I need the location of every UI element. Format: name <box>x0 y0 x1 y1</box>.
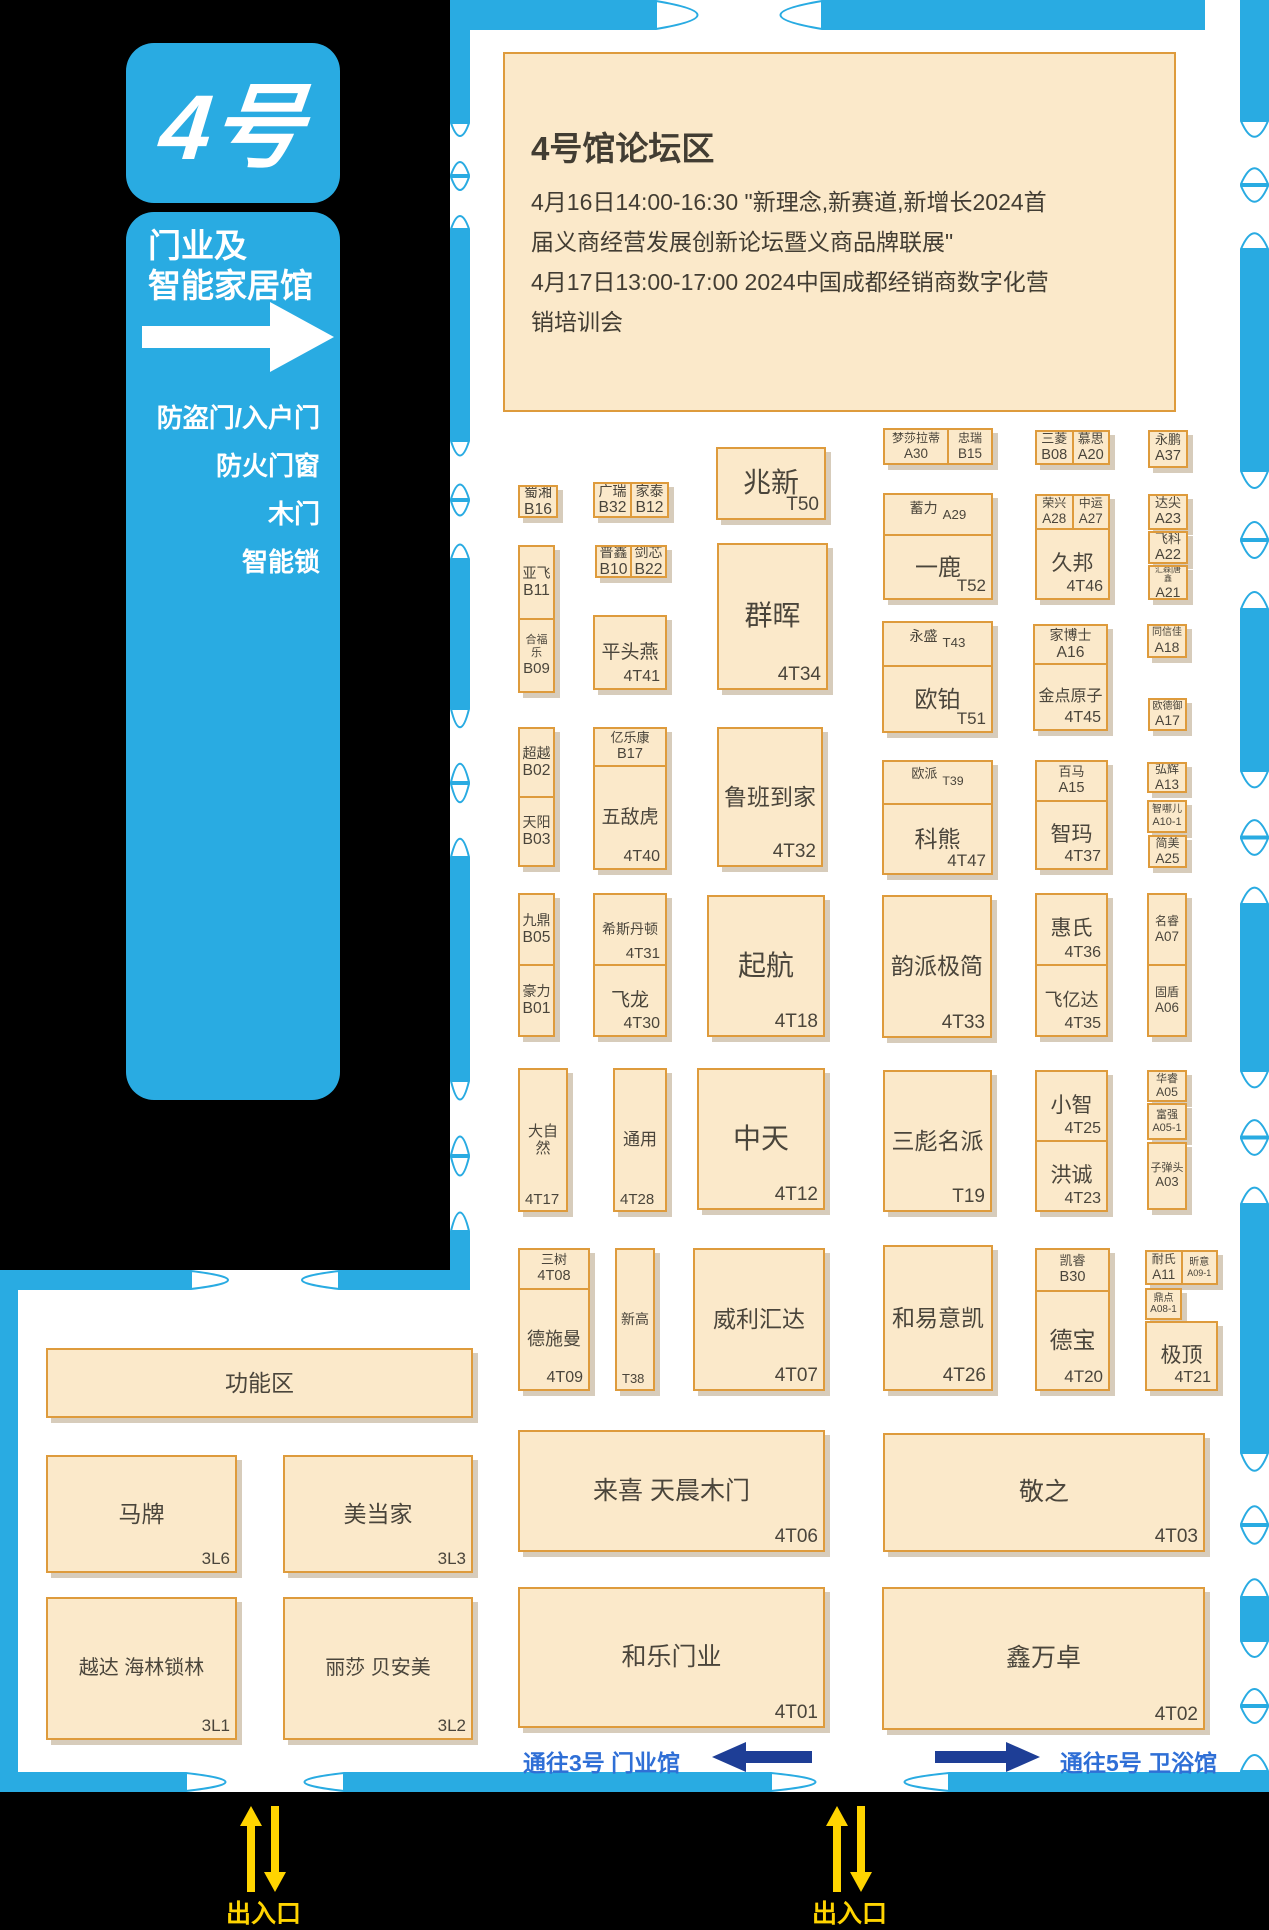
booth-code: B15 <box>958 446 982 461</box>
booth-cell: 小智4T25 <box>1037 1072 1106 1140</box>
booth-name: 弘辉 <box>1155 764 1179 777</box>
booth-cell: 华睿A05 <box>1149 1072 1185 1100</box>
booth: 同信佳A18 <box>1147 624 1187 658</box>
booth: 来喜 天晨木门4T06 <box>518 1430 825 1552</box>
booth-cell: 昕意A09-1 <box>1181 1252 1217 1283</box>
booth-code: B16 <box>524 501 552 516</box>
booth-name: 汇森|唐鑫 <box>1151 567 1185 584</box>
booth: 鼎点A08-1 <box>1145 1288 1182 1320</box>
booth-cell: 鑫万卓4T02 <box>884 1589 1203 1728</box>
booth: 极顶4T21 <box>1145 1321 1218 1391</box>
door-left <box>450 440 470 560</box>
floor-plan: 4号馆论坛区 4月16日14:00-16:30 "新理念,新赛道,新增长2024… <box>0 0 1269 1912</box>
booth: 飞科A22 <box>1148 531 1188 564</box>
booth-cell: 极顶4T21 <box>1147 1323 1216 1389</box>
door-annex-top <box>190 1270 340 1290</box>
booth-cell: 飞亿达4T35 <box>1037 964 1106 1035</box>
booth-cell: 欧铂T51 <box>884 665 991 731</box>
booth: 华睿A05 <box>1147 1070 1187 1102</box>
booth-name: 美当家 <box>344 1501 413 1527</box>
door-swing-icon <box>1240 1640 1269 1772</box>
booth: 小智4T25洪诚4T23 <box>1035 1070 1108 1212</box>
booth-code: B32 <box>599 499 627 516</box>
wall-segment <box>450 0 655 30</box>
booth-name: 忠瑞 <box>958 432 982 446</box>
booth-cell: 平头燕4T41 <box>595 617 665 688</box>
booth-name: 昕意 <box>1189 1257 1209 1269</box>
booth-code: 4T35 <box>1065 1015 1101 1033</box>
booth: 三树4T08德施曼4T09 <box>518 1248 590 1391</box>
booth: 永盛T43欧铂T51 <box>882 621 993 733</box>
booth: 亚飞B11合福乐B09 <box>518 545 555 693</box>
booth-name: 平头燕 <box>601 642 658 664</box>
booth-name: 科熊 <box>915 826 961 852</box>
booth-code: B30 <box>1060 1269 1086 1286</box>
booth-name: 希斯丹顿 <box>602 921 658 937</box>
booth-code: A25 <box>1156 851 1180 866</box>
forum-line: 届义商经营发展创新论坛暨义商品牌联展" <box>531 222 1049 262</box>
booth-name: 飞亿达 <box>1045 990 1099 1011</box>
booth-cell: 简美A25 <box>1150 837 1185 866</box>
booth-code: B11 <box>523 582 550 600</box>
booth-cell: 马牌3L6 <box>48 1457 235 1571</box>
booth-name: 同信佳 <box>1152 627 1182 639</box>
door-left <box>450 122 470 230</box>
booth-code: 4T03 <box>1155 1526 1198 1548</box>
door-swing-icon <box>450 440 470 560</box>
booth: 韵派极简4T33 <box>882 895 992 1038</box>
booth-name: 华睿 <box>1156 1073 1178 1086</box>
arrow-right-icon <box>935 1742 1040 1772</box>
booth: 永鹏A37 <box>1148 430 1188 468</box>
booth-cell: 群晖4T34 <box>719 545 826 688</box>
booth-code: A30 <box>904 446 928 461</box>
booth-cell: 来喜 天晨木门4T06 <box>520 1432 823 1550</box>
forum-title: 4号馆论坛区 <box>531 122 714 170</box>
booth-code: A08-1 <box>1150 1304 1177 1316</box>
booth-cell: 荣兴A28 <box>1037 496 1072 528</box>
booth-code: B05 <box>523 929 551 947</box>
booth-cell: 豪力B01 <box>520 964 553 1035</box>
booth-cell: 家泰B12 <box>630 484 667 516</box>
booth-name: 马牌 <box>119 1501 165 1527</box>
booth-cell: 家博士A16 <box>1035 626 1106 663</box>
booth: 兆新T50 <box>716 447 826 520</box>
booth-name: 群晖 <box>744 600 800 632</box>
booth-name: 五敌虎 <box>601 807 658 829</box>
booth-code: 4T01 <box>775 1702 818 1724</box>
booth-code: A06 <box>1155 1000 1179 1015</box>
booth-code: 4T34 <box>778 664 821 686</box>
booth-code: A10-1 <box>1152 816 1181 829</box>
door-swing-icon <box>450 708 470 858</box>
booth-name: 大自然 <box>521 1123 565 1158</box>
booth-name: 智哪儿 <box>1152 804 1182 816</box>
door-swing-icon <box>450 122 470 230</box>
booth-cell: 韵派极简4T33 <box>884 897 990 1036</box>
booth-cell: 惠氏4T36 <box>1037 895 1106 964</box>
booth-name: 丽莎 贝安美 <box>325 1657 431 1680</box>
booth: 简美A25 <box>1148 835 1187 868</box>
booth-code: B01 <box>523 1000 551 1018</box>
booth-cell: 新高T38 <box>617 1250 653 1389</box>
booth-name: 洪诚 <box>1051 1164 1093 1188</box>
booth-code: A13 <box>1155 777 1179 791</box>
booth-code: B22 <box>635 561 663 576</box>
wall-segment <box>1240 905 1269 1070</box>
forum-schedule: 4月16日14:00-16:30 "新理念,新赛道,新增长2024首 届义商经营… <box>531 182 1049 342</box>
booth: 名睿A07固盾A06 <box>1147 893 1187 1037</box>
booth: 亿乐康B17五敌虎4T40 <box>593 727 667 870</box>
booth: 希斯丹顿4T31飞龙4T30 <box>593 893 667 1037</box>
booth-cell: 飞龙4T30 <box>595 964 665 1035</box>
booth-cell: 金点原子4T45 <box>1035 663 1106 729</box>
category-list: 防盗门/入户门 防火门窗 木门 智能锁 <box>157 394 320 586</box>
booth-name: 天阳 <box>523 814 551 830</box>
booth-cell: 德宝4T20 <box>1037 1290 1108 1389</box>
wall-segment <box>1240 250 1269 470</box>
booth: 威利汇达4T07 <box>693 1248 825 1391</box>
door-swing-icon <box>1240 1452 1269 1598</box>
booth-cell: 忠瑞B15 <box>947 430 991 463</box>
booth-name: 凯睿 <box>1059 1254 1085 1269</box>
booth: 达尖A23 <box>1148 494 1188 530</box>
booth-code: A23 <box>1155 511 1181 528</box>
booth-cell: 科熊4T47 <box>884 803 991 873</box>
booth-cell: 越达 海林锁林3L1 <box>48 1599 235 1738</box>
booth-code: 4T33 <box>942 1012 985 1034</box>
booth-cell: 鲁班到家4T32 <box>719 729 821 865</box>
booth-code: T38 <box>622 1372 644 1387</box>
wall-segment <box>340 1270 470 1290</box>
booth-code: 4T32 <box>773 841 816 863</box>
booth: 中天4T12 <box>697 1068 825 1210</box>
booth-cell: 和乐门业4T01 <box>520 1589 823 1726</box>
booth-code: 3L6 <box>202 1549 230 1569</box>
booth: 三菱B08慕思A20 <box>1035 430 1110 465</box>
booth: 耐氏A11昕意A09-1 <box>1145 1250 1218 1285</box>
booth-cell: 丽莎 贝安美3L2 <box>285 1599 471 1738</box>
door-swing-icon <box>655 0 823 30</box>
wall-segment <box>450 30 470 122</box>
booth: 大自然4T17 <box>518 1068 568 1212</box>
wall-segment <box>450 560 470 708</box>
booth-name: 起航 <box>738 950 794 982</box>
booth-name: 金点原子 <box>1038 688 1102 706</box>
booth-cell: 智玛4T37 <box>1037 800 1106 868</box>
booth-name: 极顶 <box>1161 1344 1203 1368</box>
booth-code: 4T46 <box>1067 578 1103 596</box>
hall-info-card: 门业及 智能家居馆 防盗门/入户门 防火门窗 木门 智能锁 <box>126 212 340 1100</box>
booth-cell: 中运A27 <box>1072 496 1109 528</box>
wall-segment <box>1240 1205 1269 1452</box>
booth-code: A09-1 <box>1187 1268 1211 1278</box>
booth-cell: 飞科A22 <box>1150 533 1186 562</box>
booth-cell: 鼎点A08-1 <box>1147 1290 1180 1318</box>
booth: 广瑞B32家泰B12 <box>593 482 669 518</box>
booth-cell: 和易意凯4T26 <box>885 1247 991 1389</box>
booth-code: 4T41 <box>624 668 660 686</box>
booth-cell: 亚飞B11 <box>520 547 553 618</box>
booth-cell: 三菱B08 <box>1037 432 1072 463</box>
booth-code: 4T31 <box>626 945 660 962</box>
booth-cell: 超越B02 <box>520 729 553 796</box>
route-to-hall3-label: 通往3号 门业馆 <box>523 1744 680 1778</box>
booth-code: B17 <box>617 746 643 763</box>
booth-code: A17 <box>1155 712 1180 728</box>
booth-code: A07 <box>1155 929 1179 944</box>
booth-cell: 固盾A06 <box>1149 964 1185 1035</box>
hall-number-badge: 4号 <box>126 43 340 203</box>
booth-group: 荣兴A28中运A27 <box>1037 496 1108 528</box>
door-swing-icon <box>770 1772 950 1792</box>
booth-code: B08 <box>1041 447 1067 463</box>
booth-cell: 普鑫B10 <box>597 547 630 576</box>
booth-code: A05 <box>1156 1085 1178 1099</box>
booth-code: A27 <box>1079 511 1103 526</box>
booth-cell: 洪诚4T23 <box>1037 1140 1106 1210</box>
booth: 鑫万卓4T02 <box>882 1587 1205 1730</box>
booth: 群晖4T34 <box>717 543 828 690</box>
booth-code: T50 <box>786 494 819 516</box>
booth-name: 蓄力 <box>910 500 938 516</box>
booth-cell: 久邦4T46 <box>1037 528 1108 598</box>
booth-name: 功能区 <box>225 1370 294 1396</box>
booth-name: 百马 <box>1058 765 1084 780</box>
booth-name: 家泰 <box>636 484 664 499</box>
door-right <box>1240 1640 1269 1772</box>
booth-code: 4T08 <box>537 1268 570 1285</box>
wall-segment <box>0 1270 18 1792</box>
booth-name: 慕思 <box>1078 432 1104 447</box>
booth: 惠氏4T36飞亿达4T35 <box>1035 893 1108 1037</box>
booth-name: 欧铂 <box>915 686 961 712</box>
door-swing-icon <box>450 1080 470 1232</box>
booth-name: 韵派极简 <box>891 953 983 979</box>
booth-name: 中运 <box>1079 497 1103 511</box>
wall-segment <box>1240 1598 1269 1640</box>
booth-name: 亿乐康 <box>610 731 649 746</box>
booth: 欧派T39科熊4T47 <box>882 760 993 875</box>
forum-line: 4月17日13:00-17:00 2024中国成都经销商数字化营 <box>531 262 1049 302</box>
booth-name: 敬之 <box>1019 1478 1069 1507</box>
booth-name: 合福乐 <box>521 634 552 659</box>
booth-name: 耐氏 <box>1152 1253 1176 1267</box>
door-swing-icon <box>1240 120 1269 250</box>
booth-cell: 欧派T39 <box>884 762 991 803</box>
booth-name: 鑫万卓 <box>1006 1644 1081 1673</box>
door-right <box>1240 120 1269 250</box>
booth-name: 达尖 <box>1155 496 1181 511</box>
forum-area: 4号馆论坛区 4月16日14:00-16:30 "新理念,新赛道,新增长2024… <box>503 52 1176 412</box>
booth-code: 4T40 <box>624 848 660 866</box>
booth: 功能区 <box>46 1348 473 1418</box>
right-arrow-icon <box>142 292 334 382</box>
booth-code: T52 <box>957 576 986 596</box>
forum-line: 销培训会 <box>531 302 1049 342</box>
booth-name: 德施曼 <box>527 1329 581 1350</box>
entrance-label: 出入口 <box>812 1894 887 1930</box>
booth-name: 亚飞 <box>523 565 551 581</box>
booth: 马牌3L6 <box>46 1455 237 1573</box>
booth: 百马A15智玛4T37 <box>1035 760 1108 870</box>
booth-cell: 五敌虎4T40 <box>595 765 665 868</box>
booth-cell: 大自然4T17 <box>520 1070 566 1210</box>
forum-line: 4月16日14:00-16:30 "新理念,新赛道,新增长2024首 <box>531 182 1049 222</box>
booth: 荣兴A28中运A27久邦4T46 <box>1035 494 1110 600</box>
booth-name: 富强 <box>1156 1109 1178 1122</box>
wall-segment <box>1240 0 1269 120</box>
booth-cell: 永盛T43 <box>884 623 991 665</box>
hall-name-line1: 门业及 <box>148 226 313 266</box>
booth-name: 剑芯 <box>635 547 663 561</box>
booth: 普鑫B10剑芯B22 <box>595 545 667 578</box>
booth: 平头燕4T41 <box>593 615 667 690</box>
booth-code: 4T25 <box>1065 1120 1101 1138</box>
booth-cell: 梦莎拉蒂A30 <box>885 430 947 463</box>
booth-cell: 通用4T28 <box>615 1070 665 1210</box>
booth-code: T19 <box>952 1186 985 1208</box>
booth-name: 惠氏 <box>1051 917 1093 941</box>
booth-name: 久邦 <box>1052 552 1094 576</box>
booth: 欧德御A17 <box>1148 698 1187 731</box>
wall-segment <box>450 858 470 1080</box>
booth-code: A21 <box>1156 584 1181 598</box>
booth: 汇森|唐鑫A21 <box>1148 565 1188 600</box>
booth-name: 九鼎 <box>523 912 551 928</box>
booth: 弘辉A13 <box>1147 762 1187 793</box>
booth-code: B02 <box>523 762 551 780</box>
door-right <box>1240 1070 1269 1205</box>
booth-code: A29 <box>943 507 967 522</box>
booth-name: 飞科 <box>1155 533 1181 547</box>
booth-cell: 威利汇达4T07 <box>695 1250 823 1389</box>
booth: 凯睿B30德宝4T20 <box>1035 1248 1110 1391</box>
wall-segment <box>0 1270 190 1290</box>
wall-segment <box>1240 610 1269 770</box>
booth-code: 4T17 <box>525 1191 559 1208</box>
booth-code: 3L2 <box>438 1716 466 1736</box>
booth-name: 一鹿 <box>915 554 961 580</box>
booth-cell: 广瑞B32 <box>595 484 630 516</box>
booth-code: A18 <box>1155 639 1180 655</box>
booth-name: 广瑞 <box>599 484 627 499</box>
booth: 超越B02天阳B03 <box>518 727 555 867</box>
door-swing-icon <box>190 1270 340 1290</box>
booth-code: 4T26 <box>943 1365 986 1387</box>
booth: 蓄力A29一鹿T52 <box>883 493 993 600</box>
category-item: 智能锁 <box>157 538 320 586</box>
booth-cell: 汇森|唐鑫A21 <box>1150 567 1186 598</box>
booth-name: 飞龙 <box>611 990 649 1012</box>
door-left <box>450 708 470 858</box>
booth-cell: 欧德御A17 <box>1150 700 1185 729</box>
booth: 起航4T18 <box>707 895 825 1037</box>
wall-gap <box>1205 0 1240 30</box>
booth-cell: 天阳B03 <box>520 796 553 865</box>
booth-code: A05-1 <box>1152 1122 1181 1135</box>
booth-name: 超越 <box>523 745 551 761</box>
door-right <box>1240 770 1269 905</box>
booth-code: 4T12 <box>775 1184 818 1206</box>
booth: 和乐门业4T01 <box>518 1587 825 1728</box>
booth-cell: 蜀湘B16 <box>520 487 556 516</box>
booth-code: 4T18 <box>775 1011 818 1033</box>
booth-name: 鲁班到家 <box>724 784 816 810</box>
door-left <box>450 1080 470 1232</box>
booth-name: 简美 <box>1155 837 1179 851</box>
entrance-label: 出入口 <box>226 1894 301 1930</box>
booth-name: 来喜 天晨木门 <box>593 1477 750 1506</box>
booth-code: B09 <box>523 660 550 677</box>
booth-code: A20 <box>1078 447 1104 463</box>
booth-name: 欧派 <box>911 767 937 782</box>
booth-cell: 凯睿B30 <box>1037 1250 1108 1290</box>
booth-cell: 耐氏A11 <box>1147 1252 1181 1283</box>
wall-segment <box>0 1772 185 1792</box>
booth-cell: 德施曼4T09 <box>520 1288 588 1389</box>
booth-code: 4T21 <box>1175 1369 1211 1387</box>
booth-cell: 剑芯B22 <box>630 547 665 576</box>
door-top <box>655 0 823 30</box>
booth-cell: 九鼎B05 <box>520 895 553 964</box>
wall-segment <box>450 230 470 440</box>
booth-name: 荣兴 <box>1042 497 1066 511</box>
booth-name: 家博士 <box>1050 627 1092 643</box>
booth-name: 威利汇达 <box>713 1306 805 1332</box>
booth-cell: 敬之4T03 <box>885 1435 1203 1550</box>
booth-code: 4T02 <box>1155 1704 1198 1726</box>
booth-code: 4T07 <box>775 1365 818 1387</box>
booth-name: 智玛 <box>1051 823 1093 847</box>
booth: 越达 海林锁林3L1 <box>46 1597 237 1740</box>
booth-cell: 中天4T12 <box>699 1070 823 1208</box>
door-swing-icon <box>185 1772 345 1792</box>
booth-code: A28 <box>1042 511 1066 526</box>
booth: 和易意凯4T26 <box>883 1245 993 1391</box>
booth-code: 4T45 <box>1065 709 1101 727</box>
booth-cell: 合福乐B09 <box>520 618 553 691</box>
booth-name: 鼎点 <box>1154 1293 1174 1305</box>
entrance-arrows-icon <box>240 1806 286 1892</box>
booth-code: 4T28 <box>620 1191 654 1208</box>
wall-segment <box>823 0 1205 30</box>
booth-name: 蜀湘 <box>524 487 552 501</box>
booth-name: 三彪名派 <box>892 1128 984 1154</box>
booth-code: 4T06 <box>775 1526 818 1548</box>
booth-name: 欧德御 <box>1153 701 1183 713</box>
booth-cell: 三彪名派T19 <box>885 1072 990 1210</box>
booth-cell: 美当家3L3 <box>285 1457 471 1571</box>
booth-name: 德宝 <box>1050 1327 1096 1353</box>
booth-cell: 功能区 <box>48 1350 471 1416</box>
door-bottom-left <box>185 1772 345 1792</box>
entrance-arrows-icon <box>826 1806 872 1892</box>
booth: 智哪儿A10-1 <box>1147 800 1187 833</box>
booth: 蜀湘B16 <box>518 485 558 518</box>
booth-code: B03 <box>523 831 551 849</box>
door-bottom-center <box>770 1772 950 1792</box>
booth-code: 4T20 <box>1064 1367 1103 1387</box>
booth-cell: 子弹头A03 <box>1149 1144 1185 1208</box>
category-item: 防火门窗 <box>157 442 320 490</box>
category-item: 防盗门/入户门 <box>157 394 320 442</box>
booth-code: A16 <box>1057 644 1085 662</box>
booth-cell: 富强A05-1 <box>1149 1105 1185 1138</box>
door-swing-icon <box>1240 770 1269 905</box>
category-item: 木门 <box>157 490 320 538</box>
booth-cell: 永鹏A37 <box>1150 432 1186 466</box>
